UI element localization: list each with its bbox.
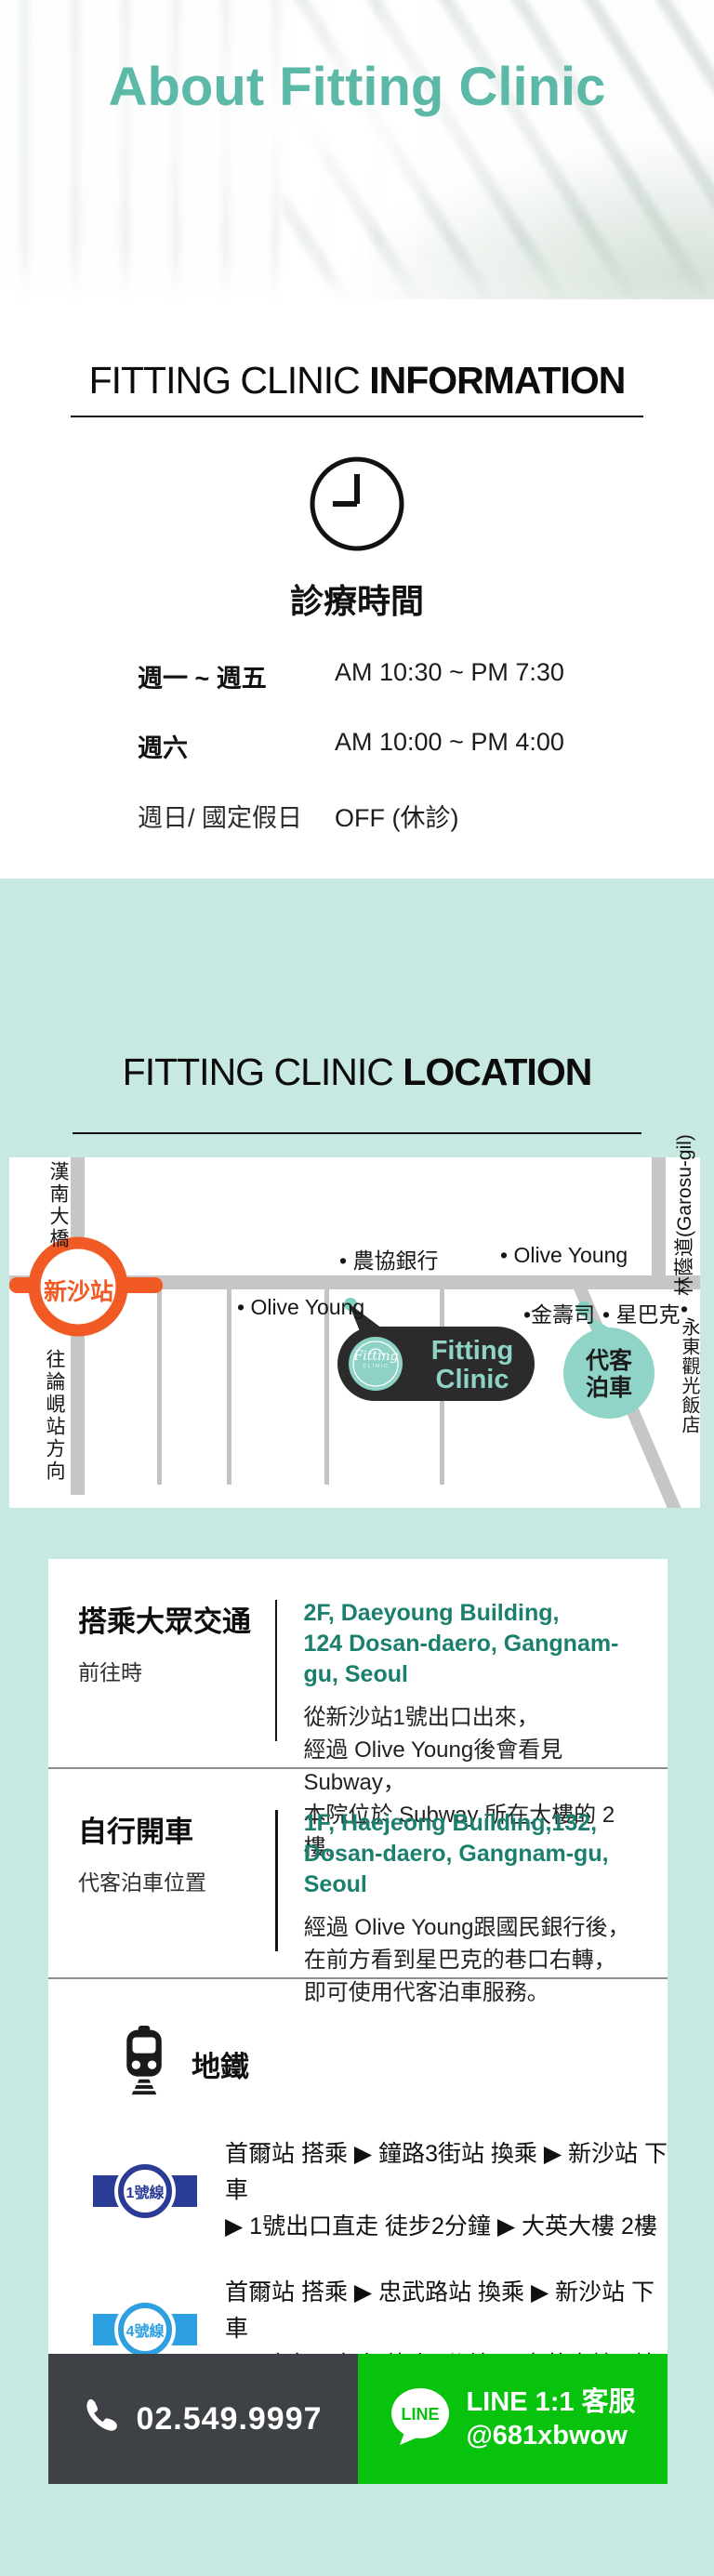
- clinic-logo-script: Fitting: [350, 1349, 403, 1364]
- line-button[interactable]: LINE LINE 1:1 客服 @681xbwow: [358, 2354, 668, 2484]
- map-label-nonhyeon-direction: 往論峴站方向: [40, 1349, 68, 1483]
- badge-circle: 4號線: [118, 2303, 172, 2357]
- contact-footer: 02.549.9997 LINE LINE 1:1 客服 @681xbwow: [48, 2354, 668, 2484]
- hours-label: 週六: [138, 728, 335, 764]
- map-label-olive-young-top: • Olive Young: [500, 1243, 628, 1268]
- subway-route-line1: 1號線 首爾站 搭乘 ▶ 鐘路3街站 換乘 ▶ 新沙站 下車 ▶ 1號出口直走 …: [93, 2136, 668, 2245]
- card-left-column: 搭乘大眾交通 前往時: [78, 1598, 275, 1767]
- location-heading-bold: LOCATION: [403, 1050, 591, 1093]
- hours-value: AM 10:30 ~ PM 7:30: [335, 658, 564, 694]
- address-line1: 2F, Daeyoung Building,: [303, 1598, 645, 1629]
- address-line2: 124 Dosan-daero, Gangnam-gu, Seoul: [303, 1629, 645, 1690]
- direction-cards: 搭乘大眾交通 前往時 2F, Daeyoung Building, 124 Do…: [48, 1559, 668, 2354]
- map-label-olive-young-bottom: • Olive Young: [237, 1295, 364, 1320]
- hours-label: 週日/ 國定假日: [138, 798, 335, 834]
- hero-image: About Fitting Clinic: [0, 0, 714, 299]
- clinic-logo-sub: CLINIC: [350, 1364, 403, 1369]
- hours-table: 週一 ~ 週五 AM 10:30 ~ PM 7:30 週六 AM 10:00 ~…: [138, 658, 584, 867]
- body-line1: 經過 Olive Young跟國民銀行後，: [304, 1911, 645, 1944]
- location-heading-light: FITTING CLINIC: [123, 1050, 393, 1093]
- card-divider: [275, 1810, 278, 1951]
- map-station-sinsa: 新沙站: [34, 1274, 123, 1307]
- page-title: About Fitting Clinic: [0, 56, 714, 118]
- line-title: LINE 1:1 客服: [466, 2385, 635, 2419]
- address-line1: 1F, Haejeong Building,132,: [304, 1808, 645, 1839]
- line-text: LINE 1:1 客服 @681xbwow: [466, 2385, 635, 2452]
- map-valet-bubble-text: 代客 泊車: [563, 1348, 654, 1402]
- subway-header: 地鐵: [121, 2020, 668, 2108]
- hours-title: 診療時間: [0, 575, 714, 623]
- card-subway: 地鐵 1號線 首爾站 搭乘 ▶ 鐘路3街站 換乘 ▶ 新沙站 下車 ▶ 1號出口…: [48, 1977, 668, 2354]
- card-address: 2F, Daeyoung Building, 124 Dosan-daero, …: [303, 1598, 645, 1690]
- line-1-badge: 1號線: [93, 2164, 197, 2218]
- card-title: 搭乘大眾交通: [78, 1598, 275, 1640]
- body-line2: 在前方看到星巴克的巷口右轉，: [304, 1944, 645, 1976]
- route-line1: 首爾站 搭乘 ▶ 鐘路3街站 換乘 ▶ 新沙站 下車: [225, 2136, 668, 2209]
- phone-number: 02.549.9997: [136, 2401, 322, 2437]
- body-line3: 即可使用代客泊車服務。: [304, 1976, 645, 2009]
- map-graphics: [9, 1157, 700, 1508]
- clinic-bubble-line2: Clinic: [407, 1366, 537, 1394]
- map-label-hannam-bridge: 漢南大橋: [44, 1161, 72, 1250]
- hours-value: OFF (休診): [335, 798, 458, 834]
- location-underline: [73, 1132, 641, 1134]
- location-heading: FITTING CLINIC LOCATION: [0, 1050, 714, 1094]
- card-title: 自行開車: [78, 1808, 275, 1850]
- valet-line2: 泊車: [563, 1375, 654, 1402]
- route-line2: ▶ 1號出口直走 徒步2分鐘 ▶ 大英大樓 2樓: [225, 2209, 668, 2245]
- map-label-garosu-gil: 林蔭道(Garosu-gil): [669, 1133, 694, 1297]
- body-line2: 經過 Olive Young後會看見Subway，: [303, 1734, 645, 1799]
- information-heading-light: FITTING CLINIC: [89, 359, 360, 402]
- information-underline: [71, 416, 643, 417]
- map-clinic-bubble-text: Fitting Clinic: [407, 1337, 537, 1394]
- map-label-starbucks: • 星巴克: [602, 1297, 680, 1328]
- badge-circle: 1號線: [118, 2164, 172, 2218]
- card-right-column: 2F, Daeyoung Building, 124 Dosan-daero, …: [303, 1598, 645, 1767]
- subway-title: 地鐵: [192, 2043, 249, 2085]
- phone-button[interactable]: 02.549.9997: [48, 2354, 358, 2484]
- page: About Fitting Clinic FITTING CLINIC INFO…: [0, 0, 714, 2576]
- valet-line1: 代客: [563, 1348, 654, 1375]
- address-line2: Dosan-daero, Gangnam-gu, Seoul: [304, 1839, 645, 1900]
- line-id: @681xbwow: [466, 2419, 635, 2452]
- svg-text:LINE: LINE: [402, 2405, 440, 2424]
- information-heading-bold: INFORMATION: [369, 359, 625, 402]
- hours-row-weekday: 週一 ~ 週五 AM 10:30 ~ PM 7:30: [138, 658, 584, 694]
- card-subtitle: 代客泊車位置: [78, 1865, 275, 1896]
- card-left-column: 自行開車 代客泊車位置: [78, 1808, 275, 1977]
- hours-row-saturday: 週六 AM 10:00 ~ PM 4:00: [138, 728, 584, 764]
- hours-value: AM 10:00 ~ PM 4:00: [335, 728, 564, 764]
- line-4-badge: 4號線: [93, 2303, 197, 2357]
- card-subtitle: 前往時: [78, 1655, 275, 1686]
- line-icon: LINE: [390, 2386, 451, 2452]
- phone-icon: [84, 2398, 119, 2441]
- clock-icon: [308, 455, 406, 558]
- map-label-yeongdong-hotel: 永東觀光飯店: [676, 1317, 703, 1434]
- card-body: 經過 Olive Young跟國民銀行後， 在前方看到星巴克的巷口右轉， 即可使…: [304, 1911, 645, 2009]
- route-text: 首爾站 搭乘 ▶ 鐘路3街站 換乘 ▶ 新沙站 下車 ▶ 1號出口直走 徒步2分…: [225, 2136, 668, 2245]
- route-line1: 首爾站 搭乘 ▶ 忠武路站 換乘 ▶ 新沙站 下車: [225, 2275, 668, 2347]
- location-map: 漢南大橋 往論峴站方向 林蔭道(Garosu-gil) 新沙站 • 農協銀行 •…: [9, 1157, 700, 1508]
- card-divider: [275, 1600, 277, 1741]
- clinic-logo-icon: Fitting CLINIC: [350, 1349, 403, 1369]
- card-right-column: 1F, Haejeong Building,132, Dosan-daero, …: [304, 1808, 645, 1977]
- hours-row-holiday: 週日/ 國定假日 OFF (休診): [138, 798, 584, 834]
- card-public-transport: 搭乘大眾交通 前往時 2F, Daeyoung Building, 124 Do…: [48, 1559, 668, 1767]
- clinic-bubble-line1: Fitting: [407, 1337, 537, 1366]
- card-address: 1F, Haejeong Building,132, Dosan-daero, …: [304, 1808, 645, 1900]
- train-icon: [121, 2020, 167, 2108]
- hours-label: 週一 ~ 週五: [138, 658, 335, 694]
- map-label-kim-sushi: •金壽司: [523, 1297, 595, 1328]
- hero-light-glow: [0, 0, 714, 299]
- body-line1: 從新沙站1號出口出來，: [303, 1701, 645, 1734]
- information-heading: FITTING CLINIC INFORMATION: [0, 359, 714, 403]
- map-label-nh-bank: • 農協銀行: [339, 1243, 438, 1275]
